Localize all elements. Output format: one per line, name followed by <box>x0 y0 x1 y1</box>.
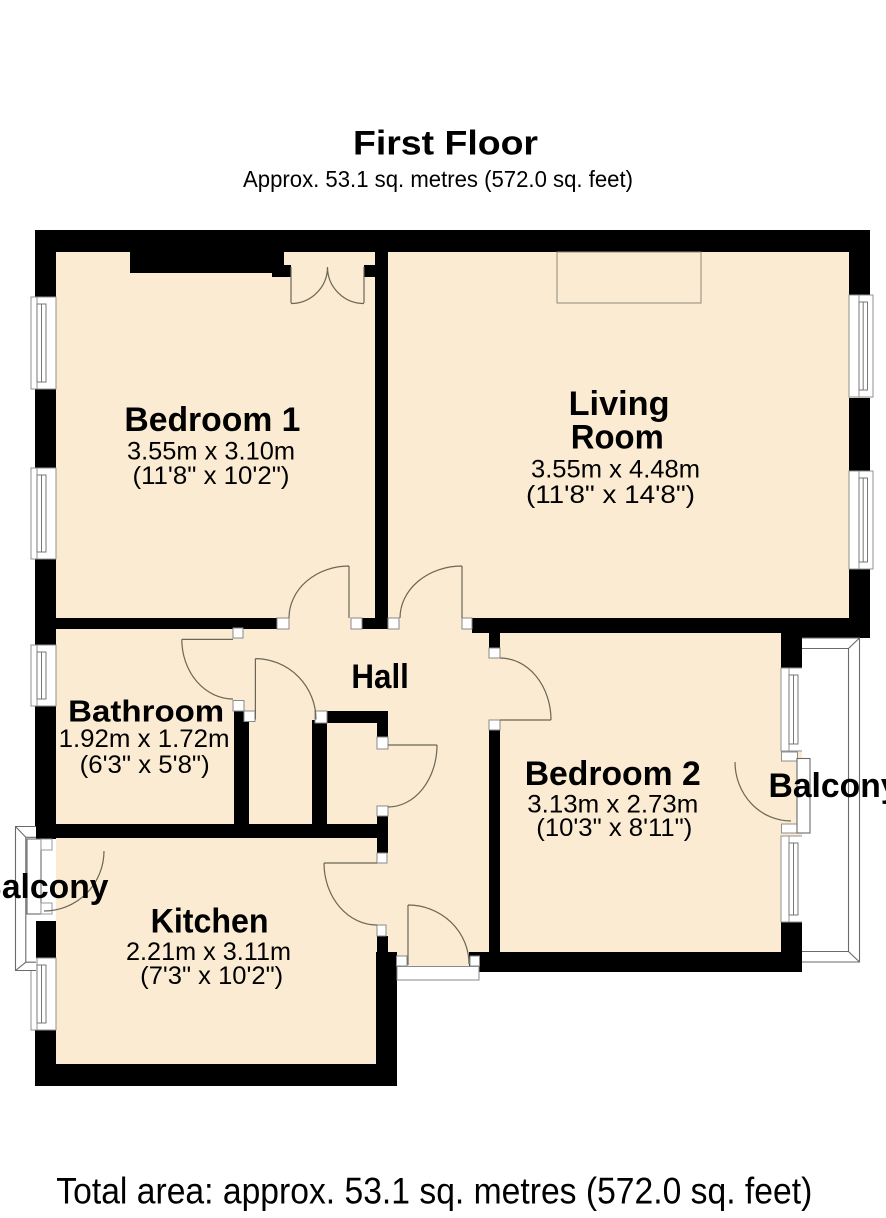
svg-text:Bedroom 1: Bedroom 1 <box>124 401 300 439</box>
svg-text:1.92m x 1.72m: 1.92m x 1.72m <box>59 725 230 753</box>
svg-text:(11'8" x 10'2"): (11'8" x 10'2") <box>133 462 290 490</box>
svg-text:(6'3" x 5'8"): (6'3" x 5'8") <box>80 751 210 779</box>
svg-text:Bathroom: Bathroom <box>68 693 224 728</box>
svg-text:Hall: Hall <box>351 658 409 696</box>
svg-text:(7'3" x 10'2"): (7'3" x 10'2") <box>140 962 283 990</box>
svg-text:Living: Living <box>569 385 670 423</box>
svg-text:First Floor: First Floor <box>353 124 538 162</box>
svg-text:(10'3" x 8'11"): (10'3" x 8'11") <box>536 814 692 842</box>
svg-text:Kitchen: Kitchen <box>151 903 269 941</box>
svg-text:Balcony: Balcony <box>0 868 109 906</box>
svg-text:Room: Room <box>571 419 664 457</box>
svg-text:(11'8" x 14'8"): (11'8" x 14'8") <box>526 481 695 509</box>
svg-text:3.55m x 4.48m: 3.55m x 4.48m <box>531 456 700 484</box>
svg-text:Bedroom 2: Bedroom 2 <box>525 755 701 793</box>
svg-text:Balcony: Balcony <box>769 767 886 805</box>
svg-text:Total area: approx. 53.1 sq. m: Total area: approx. 53.1 sq. metres (572… <box>56 1171 812 1212</box>
svg-text:Approx. 53.1 sq. metres (572.0: Approx. 53.1 sq. metres (572.0 sq. feet) <box>243 166 633 192</box>
